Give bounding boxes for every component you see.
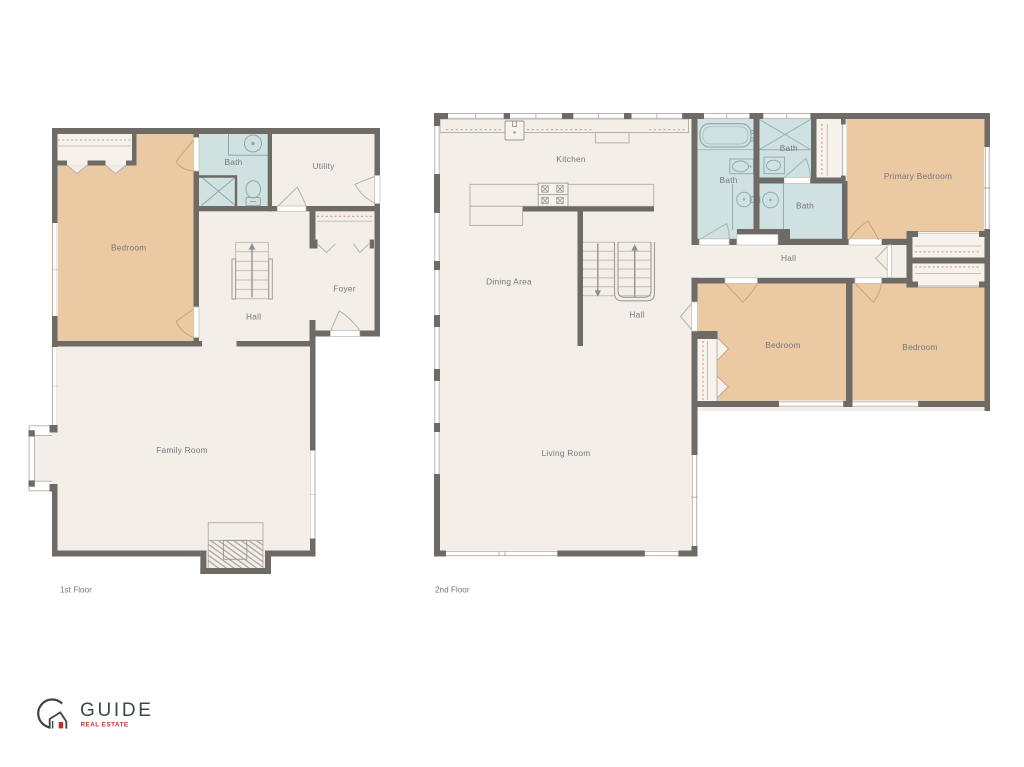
svg-text:Utility: Utility [312,161,335,171]
svg-text:Bedroom: Bedroom [902,342,937,352]
svg-text:Bedroom: Bedroom [765,340,800,350]
svg-text:2nd Floor: 2nd Floor [435,586,470,595]
svg-text:Hall: Hall [246,312,261,322]
svg-text:Living Room: Living Room [542,448,591,458]
svg-text:Bath: Bath [224,157,242,167]
svg-text:Primary Bedroom: Primary Bedroom [884,171,952,181]
svg-text:Foyer: Foyer [333,284,355,294]
svg-text:Bath: Bath [796,201,814,211]
svg-text:Bath: Bath [720,175,738,185]
svg-text:REAL ESTATE: REAL ESTATE [81,722,129,729]
svg-text:Bath: Bath [780,143,798,153]
svg-text:Hall: Hall [629,310,644,320]
svg-text:Dining Area: Dining Area [486,277,532,287]
svg-text:GUIDE: GUIDE [80,700,154,721]
svg-text:Kitchen: Kitchen [556,154,586,164]
svg-text:Family Room: Family Room [156,445,208,455]
svg-text:Bedroom: Bedroom [111,243,146,253]
svg-text:1st Floor: 1st Floor [60,586,92,595]
svg-text:Hall: Hall [781,253,796,263]
